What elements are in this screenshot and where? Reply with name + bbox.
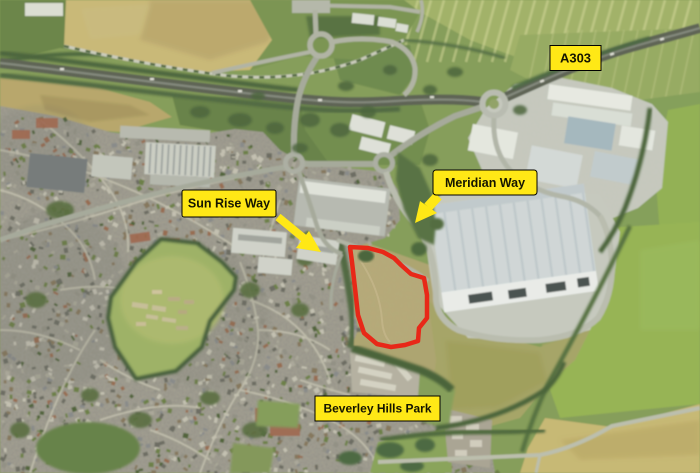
svg-text:Meridian Way: Meridian Way bbox=[445, 176, 525, 190]
svg-text:Beverley Hills Park: Beverley Hills Park bbox=[323, 402, 431, 416]
svg-text:A303: A303 bbox=[560, 51, 591, 66]
svg-text:Sun Rise Way: Sun Rise Way bbox=[188, 197, 270, 211]
